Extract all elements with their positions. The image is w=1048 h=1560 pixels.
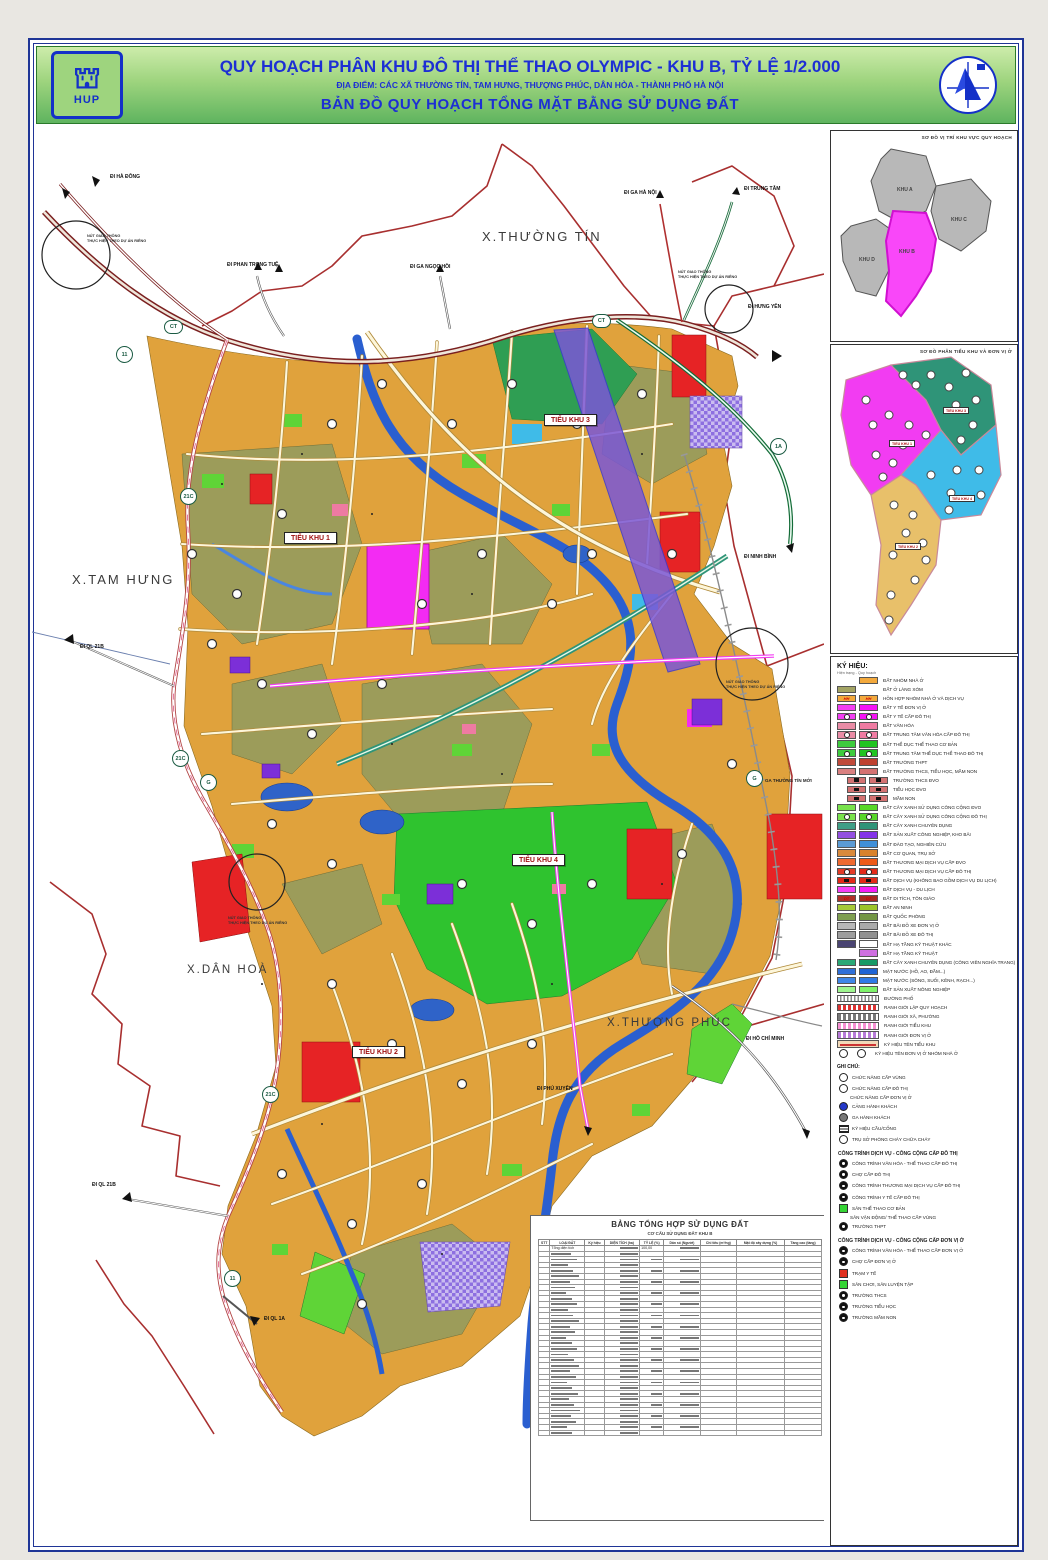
sq-green-symbol: [839, 1204, 848, 1213]
legend-item: RANH GIỚI XÃ, PHƯỜNG: [837, 1013, 1017, 1021]
legend-notes: CHỨC NĂNG CẤP VÙNGCHỨC NĂNG CẤP ĐÔ THỊCH…: [831, 1073, 1017, 1144]
legend-item-label: ĐẤT Y TẾ CẤP ĐÔ THỊ: [883, 714, 931, 719]
fillc-symbol: [839, 1246, 848, 1255]
legend-note: KÝ HIỆU CẦU/CỐNG: [839, 1125, 1017, 1133]
unit-circle-symbol: [857, 1049, 866, 1058]
sheet-location: ĐỊA ĐIỂM: CÁC XÃ THƯỜNG TÍN, TAM HƯNG, T…: [123, 80, 937, 90]
legend-item: ĐẤT CƠ QUAN, TRỤ SỞ: [837, 849, 1017, 857]
legend-note-label: CÔNG TRÌNH Y TẾ CẤP ĐÔ THỊ: [852, 1195, 920, 1200]
legend-swatch: [847, 786, 866, 794]
legend-note-label: TRƯỜNG THPT: [852, 1224, 886, 1229]
legend-swatch: [869, 795, 888, 803]
fillc-symbol: [839, 1193, 848, 1202]
legend-note: SÂN VẬN ĐỘNG/ THỂ THAO CẤP VÙNG: [839, 1215, 1017, 1220]
legend-item-label: RANH GIỚI XÃ, PHƯỜNG: [884, 1014, 939, 1019]
legend-swatch: [837, 722, 856, 730]
fillc-symbol: [839, 1170, 848, 1179]
legend-swatch: [837, 686, 856, 694]
fillc-symbol: [839, 1313, 848, 1322]
landuse-table-grid: STTLOẠI ĐẤTKý hiệuDIỆN TÍCH (ha)TỶ LỆ (%…: [538, 1239, 822, 1436]
sq-red-symbol: [839, 1269, 848, 1278]
junction-note: NÚT GIAO THÔNGTHỰC HIỆN THEO DỰ ÁN RIÊNG: [228, 916, 287, 925]
road-badge-ct: CT: [592, 314, 611, 328]
legend-swatch: [837, 868, 856, 876]
fillc-symbol: [839, 1181, 848, 1190]
legend-item: MẦM NON: [847, 795, 1017, 803]
legend-swatch: [837, 840, 856, 848]
inset1-khu-b: KHU B: [899, 249, 915, 255]
legend-item: ĐẤT THƯƠNG MẠI DỊCH VỤ CẤP ĐÔ THỊ: [837, 868, 1017, 876]
dir-ql21b: ĐI QL 21B: [80, 644, 104, 650]
legend-item-label: ĐẤT ĐÀO TẠO, NGHIÊN CỨU: [883, 842, 946, 847]
legend-note: CÔNG TRÌNH THƯƠNG MẠI DỊCH VỤ CẤP ĐÔ THỊ: [839, 1181, 1017, 1190]
road-badge-11: 11: [224, 1270, 241, 1287]
inset-subzone-map: SƠ ĐỒ PHÂN TIỂU KHU VÀ ĐƠN VỊ Ở TIỂU KHU…: [830, 344, 1018, 654]
legend-item-label: ĐẤT THƯƠNG MẠI DỊCH VỤ CẤP ĐÔ THỊ: [883, 869, 971, 874]
blue-symbol: [839, 1102, 848, 1111]
legend-item-label: ĐẤT Y TẾ ĐƠN VỊ Ở: [883, 705, 926, 710]
legend-note-label: CHỨC NĂNG CẤP VÙNG: [852, 1075, 906, 1080]
legend-swatch: [837, 877, 856, 885]
legend-item-label: ĐẤT SẢN XUẤT NÔNG NGHIỆP: [883, 987, 950, 992]
dir-ga-ngoc-hoi: ĐI GA NGỌC HỒI: [410, 264, 450, 270]
legend-item: ĐẤT DỊCH VỤ (KHÔNG BAO GỒM DỊCH VỤ DU LỊ…: [837, 877, 1017, 885]
legend-swatch: [859, 831, 878, 839]
legend-item-label: ĐẤT TRUNG TÂM VĂN HÓA CẤP ĐÔ THỊ: [883, 732, 970, 737]
legend-item: ĐƯỜNG PHỐ: [837, 995, 1017, 1003]
legend-item-label: ĐẤT SẢN XUẤT CÔNG NGHIỆP, KHO BÃI: [883, 832, 971, 837]
legend-swatch: [837, 977, 856, 985]
legend-item: ĐẤT TRƯỜNG THPT: [837, 758, 1017, 766]
legend-note: TRỤ SỞ PHÒNG CHÁY CHỮA CHÁY: [839, 1135, 1017, 1144]
road-badge-g: G: [200, 774, 217, 791]
legend-line-swatch: [837, 995, 879, 1003]
legend-item: ĐẤT TRUNG TÂM VĂN HÓA CẤP ĐÔ THỊ: [837, 731, 1017, 739]
legend-note-label: CÔNG TRÌNH VĂN HÓA - THỂ THAO CẤP ĐÔ THỊ: [852, 1161, 957, 1166]
legend-swatch: [837, 740, 856, 748]
legend-note-label: SÂN CHƠI, SÂN LUYỆN TẬP: [852, 1282, 913, 1287]
legend-item: HHHHHỖN HỢP NHÓM NHÀ Ở VÀ DỊCH VỤ: [837, 695, 1017, 703]
inset2-title: SƠ ĐỒ PHÂN TIỂU KHU VÀ ĐƠN VỊ Ở: [920, 349, 1012, 354]
legend-item: TIỂU HỌC ĐVO: [847, 786, 1017, 794]
legend-item-label: ĐẤT CƠ QUAN, TRỤ SỞ: [883, 851, 935, 856]
table-cell: [585, 1430, 604, 1436]
legend-swatch: [859, 749, 878, 757]
table-cell: [737, 1430, 785, 1436]
table-cell: [700, 1430, 736, 1436]
legend-item-label: KÝ HIỆU TÊN TIỂU KHU: [884, 1042, 935, 1047]
legend-item: ĐẤT TRƯỜNG THCS, TIỂU HỌC, MẦM NON: [837, 768, 1017, 776]
legend-swatch: [837, 940, 856, 948]
legend-item-label: ĐẤT CÂY XANH SỬ DỤNG CÔNG CỘNG ĐVO: [883, 805, 981, 810]
legend-swatch: [859, 758, 878, 766]
legend-item-label: ĐẤT QUỐC PHÒNG: [883, 914, 925, 919]
inset-location-map: SƠ ĐỒ VỊ TRÍ KHU VỰC QUY HOẠCH KHU A KHU…: [830, 130, 1018, 342]
legend-note: SÂN CHƠI, SÂN LUYỆN TẬP: [839, 1280, 1017, 1289]
legend-swatch: [859, 713, 878, 721]
fillc-symbol: [839, 1291, 848, 1300]
legend-note-label: CHỢ CẤP ĐÔ THỊ: [852, 1172, 890, 1177]
legend-swatch: [859, 731, 878, 739]
legend-note-label: KÝ HIỆU CẦU/CỐNG: [852, 1126, 896, 1131]
legend-note-label: CHỢ CẤP ĐƠN VỊ Ở: [852, 1259, 896, 1264]
inset1-khu-a: KHU A: [897, 187, 913, 193]
legend-note-label: CHỨC NĂNG CẤP ĐÔ THỊ: [852, 1086, 908, 1091]
legend-item: TRƯỜNG THCS ĐVO: [847, 777, 1017, 785]
ring-symbol: [839, 1084, 848, 1093]
legend-item: ĐẤT Y TẾ ĐƠN VỊ Ở: [837, 704, 1017, 712]
legend-item: MẶT NƯỚC (HỒ, AO, ĐẦM...): [837, 968, 1017, 976]
legend-swatch: [859, 804, 878, 812]
legend-swatch: [837, 968, 856, 976]
legend-swatch: [837, 959, 856, 967]
legend-item: ĐẤT THỂ DỤC THỂ THAO CƠ BẢN: [837, 740, 1017, 748]
legend-item: ĐẤT CÂY XANH CHUYÊN DỤNG: [837, 822, 1017, 830]
legend-swatch: [859, 922, 878, 930]
legend-swatch: [859, 977, 878, 985]
legend-swatch: [859, 968, 878, 976]
legend-item: ĐẤT CÂY XANH CHUYÊN DỤNG (CÔNG VIÊN NGHĨ…: [837, 959, 1017, 967]
legend-group-title: CÔNG TRÌNH DỊCH VỤ - CÔNG CỘNG CẤP ĐÔ TH…: [838, 1151, 1017, 1157]
legend-swatch: [859, 686, 878, 694]
legend-note: CẢNG HÀNH KHÁCH: [839, 1102, 1017, 1111]
legend-swatch: [837, 813, 856, 821]
legend-item-label: ĐƯỜNG PHỐ: [884, 996, 913, 1001]
legend-swatch: DT: [837, 895, 856, 903]
legend-item: KÝ HIỆU TÊN ĐƠN VỊ Ở NHÓM NHÀ Ở: [837, 1049, 1017, 1058]
fillc-symbol: [839, 1257, 848, 1266]
table-cell: [640, 1430, 664, 1436]
legend-swatch: [859, 949, 878, 957]
inset1-khu-c: KHU C: [951, 217, 967, 223]
legend-line-swatch: [837, 1004, 879, 1012]
legend-item: ĐẤT ĐÀO TẠO, NGHIÊN CỨU: [837, 840, 1017, 848]
legend-item-label: MẦM NON: [893, 796, 915, 801]
legend-item-label: ĐẤT HẠ TẦNG KỸ THUẬT: [883, 951, 938, 956]
legend-item-label: RANH GIỚI ĐƠN VỊ Ở: [884, 1033, 931, 1038]
table-cell: [664, 1430, 700, 1436]
legend-item: ĐẤT Y TẾ CẤP ĐÔ THỊ: [837, 713, 1017, 721]
dir-ql1a: ĐI QL 1A: [264, 1316, 285, 1322]
junction-note: NÚT GIAO THÔNGTHỰC HIỆN THEO DỰ ÁN RIÊNG: [87, 234, 146, 243]
dir-hung-yen: ĐI HƯNG YÊN: [748, 304, 781, 310]
legend-note: TRƯỜNG TIỂU HỌC: [839, 1302, 1017, 1311]
legend-item: ĐẤT THƯƠNG MẠI DỊCH VỤ CẤP ĐVO: [837, 858, 1017, 866]
road-badge-1a: 1A: [770, 438, 787, 455]
legend-item-label: ĐẤT THỂ DỤC THỂ THAO CƠ BẢN: [883, 742, 957, 747]
inset2-tk4: TIỂU KHU 4: [949, 495, 975, 502]
legend-item-label: TRƯỜNG THCS ĐVO: [893, 778, 939, 783]
legend-swatch: [837, 749, 856, 757]
legend-swatch: [837, 822, 856, 830]
legend-note-label: CHỨC NĂNG CẤP ĐƠN VỊ Ở: [850, 1095, 912, 1100]
landuse-summary-table: BẢNG TỔNG HỢP SỬ DỤNG ĐẤT CƠ CẤU SỬ DỤNG…: [530, 1215, 824, 1521]
legend-swatch: [837, 931, 856, 939]
legend-note: TRƯỜNG THCS: [839, 1291, 1017, 1300]
legend-swatch: [837, 904, 856, 912]
legend-columns-note: Hiện trạng - Quy hoạch: [837, 671, 1017, 675]
legend-note: CÔNG TRÌNH VĂN HÓA - THỂ THAO CẤP ĐÔ THỊ: [839, 1159, 1017, 1168]
legend-item-label: MẶT NƯỚC (SÔNG, SUỐI, KÊNH, RẠCH...): [883, 978, 975, 983]
area-label-dan-hoa: X.DÂN HOÀ: [187, 964, 268, 976]
map-title: BẢN ĐỒ QUY HOẠCH TỔNG MẶT BẰNG SỬ DỤNG Đ…: [123, 96, 937, 113]
legend-swatch: DT: [859, 895, 878, 903]
dir-ga-ha-noi: ĐI GA HÀ NỘI: [624, 190, 657, 196]
legend-swatch: HH: [859, 695, 878, 703]
hup-logo: ⛫ HUP: [51, 51, 123, 119]
legend-swatch: [859, 849, 878, 857]
legend-item: ĐẤT VĂN HÓA: [837, 722, 1017, 730]
legend-swatch: [859, 904, 878, 912]
legend-item: ĐẤT HẠ TẦNG KỸ THUẬT KHÁC: [837, 940, 1017, 948]
legend-item-label: ĐẤT TRUNG TÂM THỂ DỤC THỂ THAO ĐÔ THỊ: [883, 751, 983, 756]
legend-item-label: ĐẤT CÂY XANH CHUYÊN DỤNG (CÔNG VIÊN NGHĨ…: [883, 960, 1015, 965]
table-row: [539, 1430, 822, 1436]
legend-note: CHỨC NĂNG CẤP ĐƠN VỊ Ở: [839, 1095, 1017, 1100]
road-badge-21c: 21C: [180, 488, 197, 505]
legend-note-label: SÂN VẬN ĐỘNG/ THỂ THAO CẤP VÙNG: [850, 1215, 936, 1220]
legend-note: CHỢ CẤP ĐƠN VỊ Ở: [839, 1257, 1017, 1266]
table-title: BẢNG TỔNG HỢP SỬ DỤNG ĐẤT: [531, 1220, 824, 1229]
dir-phu-xuyen: ĐI PHÚ XUYÊN: [537, 1086, 573, 1092]
legend-note: TRẠM Y TẾ: [839, 1269, 1017, 1278]
legend-line-swatch: [837, 1040, 879, 1048]
legend-note-label: SÂN THỂ THAO CƠ BẢN: [852, 1206, 905, 1211]
legend-note: CÔNG TRÌNH VĂN HÓA - THỂ THAO CẤP ĐƠN VỊ…: [839, 1246, 1017, 1255]
legend-item-label: ĐẤT AN NINH: [883, 905, 912, 910]
legend-swatch: [859, 868, 878, 876]
legend-swatch: [859, 940, 878, 948]
subzone-badge-3: TIỂU KHU 3: [544, 414, 597, 426]
dir-ha-dong: ĐI HÀ ĐÔNG: [110, 174, 140, 180]
legend-item-label: ĐẤT DỊCH VỤ - DU LỊCH: [883, 887, 935, 892]
legend-note-label: CẢNG HÀNH KHÁCH: [852, 1104, 897, 1109]
legend-item: ĐẤT TRUNG TÂM THỂ DỤC THỂ THAO ĐÔ THỊ: [837, 749, 1017, 757]
main-map: X.THƯỜNG TÍN X.TAM HƯNG X.DÂN HOÀ X.THƯỢ…: [32, 124, 824, 1544]
legend-item-label: RANH GIỚI LẬP QUY HOẠCH: [884, 1005, 947, 1010]
scanned-plan-photo: { "header": { "title": "QUY HOẠCH PHÂN K…: [0, 0, 1048, 1560]
legend-swatch: [859, 913, 878, 921]
legend-note-label: TRƯỜNG TIỂU HỌC: [852, 1304, 896, 1309]
junction-note: NÚT GIAO THÔNGTHỰC HIỆN THEO DỰ ÁN RIÊNG: [726, 680, 785, 689]
legend-swatch: [859, 959, 878, 967]
legend-line-swatch: [837, 1022, 879, 1030]
legend-item-label: RANH GIỚI TIỂU KHU: [884, 1023, 931, 1028]
legend-item-label: ĐẤT DỊCH VỤ (KHÔNG BAO GỒM DỊCH VỤ DU LỊ…: [883, 878, 997, 883]
road-badge-ct: CT: [164, 320, 183, 334]
legend-swatch: [837, 831, 856, 839]
legend-note: SÂN THỂ THAO CƠ BẢN: [839, 1204, 1017, 1213]
legend-item: DTDTĐẤT DI TÍCH, TÔN GIÁO: [837, 895, 1017, 903]
subzone-badge-2: TIỂU KHU 2: [352, 1046, 405, 1058]
legend-swatch: [869, 786, 888, 794]
legend-swatch: [859, 722, 878, 730]
legend-swatch: [837, 913, 856, 921]
legend-swatch: [859, 931, 878, 939]
legend-swatch: [859, 877, 878, 885]
legend-swatch: [837, 804, 856, 812]
inset2-tk2: TIỂU KHU 2: [895, 543, 921, 550]
legend-item-label: ĐẤT CÂY XANH CHUYÊN DỤNG: [883, 823, 952, 828]
legend-item: ĐẤT Ở LÀNG XÓM: [837, 686, 1017, 694]
legend-item: RANH GIỚI TIỂU KHU: [837, 1022, 1017, 1030]
legend-note: CHỨC NĂNG CẤP VÙNG: [839, 1073, 1017, 1082]
legend-item-label: HỖN HỢP NHÓM NHÀ Ở VÀ DỊCH VỤ: [883, 696, 964, 701]
legend-note-label: TRƯỜNG THCS: [852, 1293, 887, 1298]
fire-symbol: [839, 1135, 848, 1144]
legend-item: ĐẤT BÃI ĐỖ XE ĐƠN VỊ Ở: [837, 922, 1017, 930]
road-badge-11: 11: [116, 346, 133, 363]
legend-note-label: CÔNG TRÌNH VĂN HÓA - THỂ THAO CẤP ĐƠN VỊ…: [852, 1248, 963, 1253]
gray-symbol: [839, 1113, 848, 1122]
legend-item-label: ĐẤT VĂN HÓA: [883, 723, 914, 728]
legend-note-label: GA HÀNH KHÁCH: [852, 1115, 890, 1120]
road-badge-21c: 21C: [172, 750, 189, 767]
legend-item-label: ĐẤT TRƯỜNG THPT: [883, 760, 927, 765]
sheet-title: QUY HOẠCH PHÂN KHU ĐÔ THỊ THỂ THAO OLYMP…: [123, 57, 937, 77]
legend-item-label: KÝ HIỆU TÊN ĐƠN VỊ Ở NHÓM NHÀ Ở: [875, 1051, 958, 1056]
subzone-badge-1: TIỂU KHU 1: [284, 532, 337, 544]
dir-phan-trong-tue: ĐI PHAN TRỌNG TUỆ: [227, 262, 278, 268]
table-cell: [604, 1430, 639, 1436]
legend-notes-title: GHI CHÚ:: [837, 1064, 1017, 1070]
legend-line-swatch: [837, 1031, 879, 1039]
legend-note: GA HÀNH KHÁCH: [839, 1113, 1017, 1122]
legend-swatch: [859, 768, 878, 776]
junction-note: NÚT GIAO THÔNGTHỰC HIỆN THEO DỰ ÁN RIÊNG: [678, 270, 737, 279]
legend-item: ĐẤT SẢN XUẤT CÔNG NGHIỆP, KHO BÃI: [837, 831, 1017, 839]
dir-ql21b-south: ĐI QL 21B: [92, 1182, 116, 1188]
inset2-tk3: TIỂU KHU 3: [943, 407, 969, 414]
legend-swatch: [837, 949, 856, 957]
legend-swatch: [859, 986, 878, 994]
legend-swatch: [837, 858, 856, 866]
area-label-tam-hung: X.TAM HƯNG: [72, 572, 174, 587]
legend-item-label: ĐẤT BÃI ĐỖ XE ĐÔ THỊ: [883, 932, 933, 937]
legend-swatch: [847, 795, 866, 803]
legend-line-swatch: [837, 1013, 879, 1021]
legend-swatch: HH: [837, 695, 856, 703]
legend-item: ĐẤT NHÓM NHÀ Ở: [837, 677, 1017, 685]
legend-item: ĐẤT SẢN XUẤT NÔNG NGHIỆP: [837, 986, 1017, 994]
table-subtitle: CƠ CẤU SỬ DỤNG ĐẤT KHU B: [531, 1231, 824, 1236]
unit-circle-symbol: [839, 1049, 848, 1058]
inset1-khu-d: KHU D: [859, 257, 875, 263]
legend-swatch: [837, 849, 856, 857]
legend-swatch: [859, 858, 878, 866]
legend-swatch: [859, 677, 878, 685]
table-cell: [785, 1430, 822, 1436]
legend-note: CHỢ CẤP ĐÔ THỊ: [839, 1170, 1017, 1179]
legend-swatch: [869, 777, 888, 785]
legend-note: TRƯỜNG MẦM NON: [839, 1313, 1017, 1322]
legend-item-label: ĐẤT Ở LÀNG XÓM: [883, 687, 923, 692]
legend-swatch: [847, 777, 866, 785]
legend-swatch: [837, 713, 856, 721]
road-badge-21c: 21C: [262, 1086, 279, 1103]
legend-item-label: ĐẤT CÂY XANH SỬ DỤNG CÔNG CỘNG ĐÔ THỊ: [883, 814, 987, 819]
sq-green-symbol: [839, 1280, 848, 1289]
legend-item: ĐẤT AN NINH: [837, 904, 1017, 912]
legend-item-label: ĐẤT NHÓM NHÀ Ở: [883, 678, 924, 683]
legend-note-label: TRƯỜNG MẦM NON: [852, 1315, 896, 1320]
legend-note: CÔNG TRÌNH Y TẾ CẤP ĐÔ THỊ: [839, 1193, 1017, 1202]
legend-swatch: [837, 731, 856, 739]
legend-panel: KÝ HIỆU: Hiện trạng - Quy hoạch ĐẤT NHÓM…: [830, 656, 1018, 1546]
legend-note-label: TRẠM Y TẾ: [852, 1271, 876, 1276]
legend-swatch: [859, 740, 878, 748]
title-text-group: QUY HOẠCH PHÂN KHU ĐÔ THỊ THỂ THAO OLYMP…: [123, 57, 937, 113]
legend-swatch: [859, 886, 878, 894]
legend-item-label: ĐẤT TRƯỜNG THCS, TIỂU HỌC, MẦM NON: [883, 769, 977, 774]
plan-sheet: ⛫ HUP QUY HOẠCH PHÂN KHU ĐÔ THỊ THỂ THAO…: [28, 38, 1024, 1552]
legend-item: MẶT NƯỚC (SÔNG, SUỐI, KÊNH, RẠCH...): [837, 977, 1017, 985]
dir-ninh-binh: ĐI NINH BÌNH: [744, 554, 776, 560]
legend-title: KÝ HIỆU:: [837, 663, 1017, 670]
fillc-symbol: [839, 1302, 848, 1311]
legend-item: ĐẤT DỊCH VỤ - DU LỊCH: [837, 886, 1017, 894]
legend-item-label: TIỂU HỌC ĐVO: [893, 787, 926, 792]
pagoda-icon: ⛫: [73, 64, 101, 94]
road-badge-g: G: [746, 770, 763, 787]
legend-swatch: [837, 922, 856, 930]
legend-item-label: ĐẤT DI TÍCH, TÔN GIÁO: [883, 896, 935, 901]
legend-swatch: [837, 758, 856, 766]
dir-ho-chi-minh: ĐI HỒ CHÍ MINH: [746, 1036, 784, 1042]
table-cell: [550, 1430, 585, 1436]
legend-swatch: [837, 886, 856, 894]
legend-item: ĐẤT HẠ TẦNG KỸ THUẬT: [837, 949, 1017, 957]
fillc-symbol: [839, 1222, 848, 1231]
legend-swatch: [837, 704, 856, 712]
station-label: GA THƯỜNG TÍN MỚI: [765, 778, 812, 783]
legend-items: ĐẤT NHÓM NHÀ ỞĐẤT Ở LÀNG XÓMHHHHHỖN HỢP …: [831, 677, 1017, 1059]
legend-swatch: [837, 768, 856, 776]
hup-logo-text: HUP: [74, 94, 100, 106]
legend-item: ĐẤT CÂY XANH SỬ DỤNG CÔNG CỘNG ĐVO: [837, 804, 1017, 812]
legend-item-label: MẶT NƯỚC (HỒ, AO, ĐẦM...): [883, 969, 945, 974]
legend-group-title: CÔNG TRÌNH DỊCH VỤ - CÔNG CỘNG CẤP ĐƠN V…: [838, 1238, 1017, 1244]
legend-swatch: [837, 677, 856, 685]
title-block: ⛫ HUP QUY HOẠCH PHÂN KHU ĐÔ THỊ THỂ THAO…: [36, 46, 1016, 124]
legend-swatch: [859, 822, 878, 830]
legend-item: ĐẤT QUỐC PHÒNG: [837, 913, 1017, 921]
area-label-thuong-tin: X.THƯỜNG TÍN: [482, 229, 602, 244]
legend-swatch: [859, 704, 878, 712]
legend-item: ĐẤT CÂY XANH SỬ DỤNG CÔNG CỘNG ĐÔ THỊ: [837, 813, 1017, 821]
legend-swatch: [859, 813, 878, 821]
legend-item: RANH GIỚI LẬP QUY HOẠCH: [837, 1004, 1017, 1012]
fillc-symbol: [839, 1159, 848, 1168]
ring-symbol: [839, 1073, 848, 1082]
inset1-title: SƠ ĐỒ VỊ TRÍ KHU VỰC QUY HOẠCH: [922, 135, 1012, 140]
legend-note: CHỨC NĂNG CẤP ĐÔ THỊ: [839, 1084, 1017, 1093]
legend-item-label: ĐẤT THƯƠNG MẠI DỊCH VỤ CẤP ĐVO: [883, 860, 966, 865]
bridge-symbol: [839, 1125, 849, 1133]
subzone-badge-4: TIỂU KHU 4: [512, 854, 565, 866]
area-label-thuong-phuc: X.THƯỢNG PHÚC: [607, 1017, 732, 1029]
legend-item: RANH GIỚI ĐƠN VỊ Ở: [837, 1031, 1017, 1039]
legend-item: ĐẤT BÃI ĐỖ XE ĐÔ THỊ: [837, 931, 1017, 939]
legend-swatch: [859, 840, 878, 848]
inset2-tk1: TIỂU KHU 1: [889, 440, 915, 447]
legend-note: TRƯỜNG THPT: [839, 1222, 1017, 1231]
legend-item: KÝ HIỆU TÊN TIỂU KHU: [837, 1040, 1017, 1048]
round-emblem-icon: [937, 54, 999, 116]
legend-item-label: ĐẤT BÃI ĐỖ XE ĐƠN VỊ Ở: [883, 923, 939, 928]
dir-trung-tam: ĐI TRUNG TÂM: [744, 186, 780, 192]
table-cell: [539, 1430, 550, 1436]
